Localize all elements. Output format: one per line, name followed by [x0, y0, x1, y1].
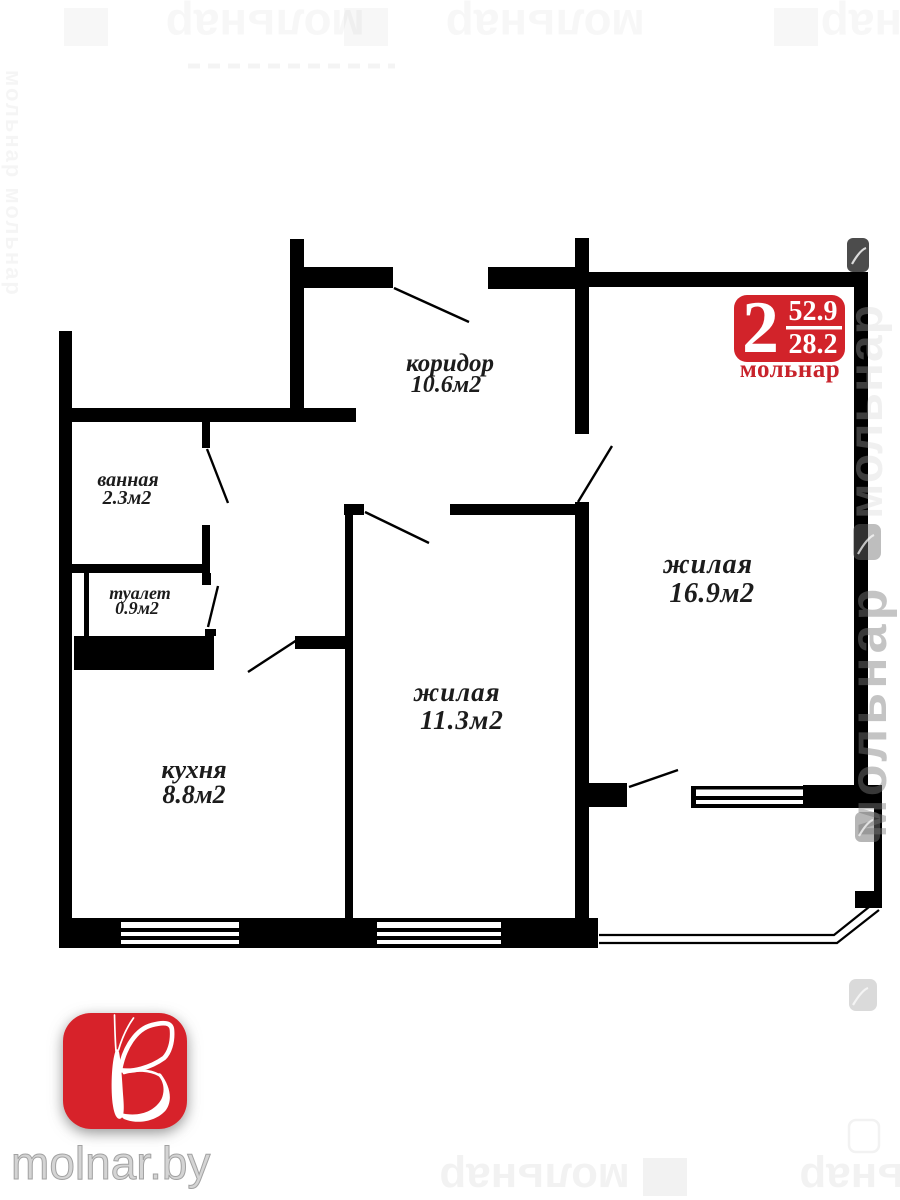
svg-text:molnar.by: molnar.by — [11, 1137, 210, 1189]
svg-text:мольнар: мольнар — [840, 585, 898, 838]
svg-text:2.3м2: 2.3м2 — [102, 487, 152, 509]
svg-text:11.3м2: 11.3м2 — [420, 705, 504, 735]
svg-text:0.9м2: 0.9м2 — [115, 598, 159, 618]
svg-text:жилая: жилая — [662, 549, 753, 580]
svg-text:мольнар: мольнар — [840, 304, 893, 519]
svg-text:мольнар: мольнар — [446, 0, 645, 52]
svg-text:мольнар: мольнар — [439, 1154, 630, 1200]
svg-text:мольнар мольнар: мольнар мольнар — [1, 70, 26, 297]
svg-text:мольнар: мольнар — [799, 1154, 900, 1200]
svg-text:52.9: 52.9 — [789, 296, 838, 327]
svg-text:8.8м2: 8.8м2 — [162, 780, 225, 809]
svg-text:16.9м2: 16.9м2 — [669, 578, 754, 609]
svg-text:10.6м2: 10.6м2 — [411, 372, 481, 398]
svg-text:мольнар: мольнар — [821, 0, 900, 52]
svg-text:жилая: жилая — [413, 677, 501, 707]
svg-text:мольнар: мольнар — [166, 0, 365, 52]
svg-text:мольнар: мольнар — [740, 356, 840, 383]
